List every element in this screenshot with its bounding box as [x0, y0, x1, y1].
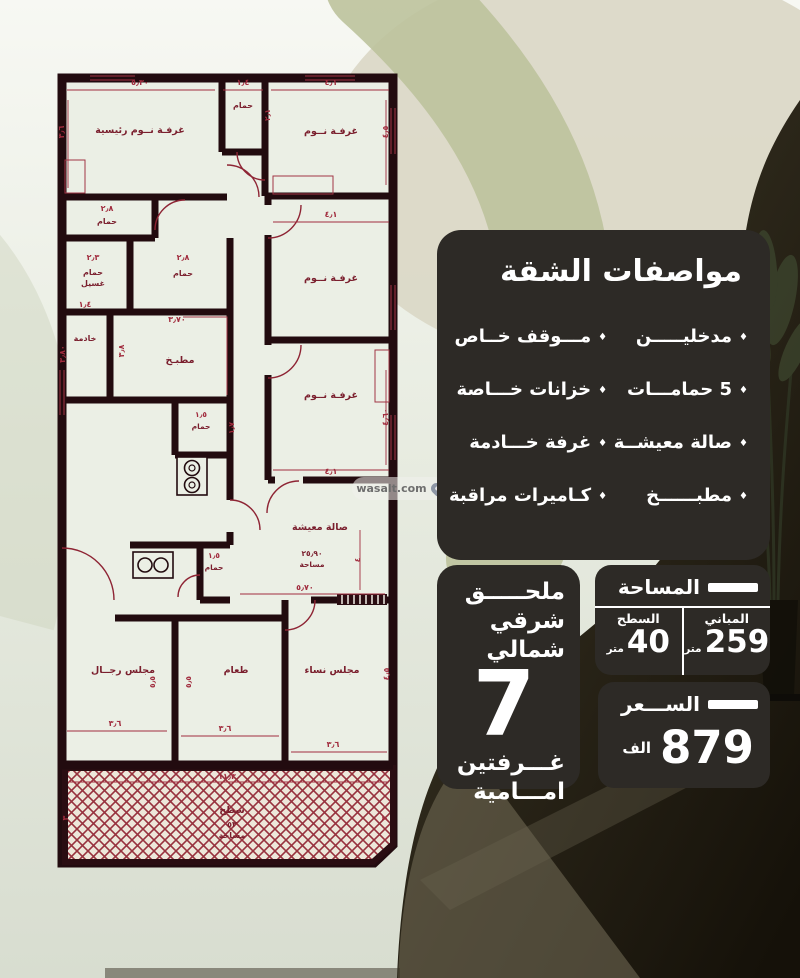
room-label: حمام: [83, 268, 103, 277]
spec-item-label: كـاميرات مراقبة: [449, 485, 591, 506]
room-label: حمام: [192, 422, 211, 431]
room-label: صالة معيشة: [292, 522, 348, 533]
price-value-row: 879 الف: [598, 723, 770, 770]
room-label: حمام: [173, 269, 193, 278]
room-label: غرفـة نــوم: [304, 126, 358, 137]
room-label: سطح: [219, 805, 244, 816]
header-bar-icon: [708, 583, 758, 592]
room-label: غرفـة نــوم: [304, 390, 358, 401]
dimension-label: ١١٫٣: [218, 772, 236, 781]
annex-line-4: امـــامية: [449, 778, 565, 807]
spec-item-label: 5 حمامـــات: [627, 379, 732, 400]
dimension-label: ٤: [353, 558, 362, 563]
roof-area-value: 40: [627, 627, 670, 658]
diamond-bullet-icon: ♦: [598, 492, 607, 502]
room-label: ٥٣: [227, 820, 237, 829]
diamond-bullet-icon: ♦: [598, 386, 607, 396]
dimension-label: ٣٫٦: [109, 719, 122, 728]
spec-item-kitchen: ♦مطبــــــخ: [611, 485, 748, 506]
dimension-label: ٤٫٥: [381, 126, 390, 139]
spec-item-label: غرفة خـــادمة: [469, 432, 591, 453]
spec-item-bathrooms: ♦5 حمامـــات: [611, 379, 748, 400]
diamond-bullet-icon: ♦: [598, 439, 607, 449]
olive-curve-left: [0, 250, 35, 620]
room-label: طعام: [224, 665, 249, 676]
room-label: ٢٥٫٩٠: [301, 549, 322, 558]
spec-item-tanks: ♦خزانات خـــاصة: [449, 379, 607, 400]
price-value: 879: [660, 725, 754, 770]
dimension-label: ٢٫١: [263, 109, 272, 121]
area-title: المساحة: [618, 575, 700, 599]
annex-line-3: غـــرفتين: [449, 749, 565, 778]
room-label: حمام: [205, 563, 224, 572]
spec-item-label: صالة معيشــة: [614, 432, 732, 453]
dimension-label: ٣٫٦: [57, 126, 66, 139]
dimension-label: ٣٫٨٠: [58, 345, 67, 363]
photo-floor-edge: [105, 968, 400, 978]
room-label: خادمة: [74, 334, 97, 343]
area-panel: المساحة المباني 259 متر السطح 40 متر: [595, 565, 770, 675]
dimension-label: ٢٫٨: [177, 253, 190, 262]
spec-item-label: مطبــــــخ: [646, 485, 732, 506]
dimension-label: ٣٫٨: [117, 345, 126, 358]
specs-title: مواصفات الشقة: [437, 230, 770, 289]
annex-line-1: ملحـــــق: [449, 578, 565, 607]
dimension-label: ٤٫١: [325, 467, 338, 476]
spec-item-parking: ♦مـــوقف خــاص: [449, 326, 607, 347]
diamond-bullet-icon: ♦: [739, 333, 748, 343]
spec-item-living-hall: ♦صالة معيشــة: [611, 432, 748, 453]
annex-number: 7: [449, 664, 559, 747]
annex-panel: ملحـــــق شرقي شمالي 7 غـــرفتين امـــام…: [437, 565, 580, 789]
price-title: الســـعر: [621, 692, 700, 716]
price-unit: الف: [622, 739, 651, 757]
room-label: مجلس رجــال: [91, 665, 155, 676]
diamond-bullet-icon: ♦: [739, 386, 748, 396]
dimension-label: ٥٫٥: [184, 676, 193, 688]
room-label: مساحة: [219, 831, 246, 840]
dimension-label: ٢٫٨: [101, 204, 114, 213]
stove-fixture: [133, 552, 173, 578]
roof-area-unit: متر: [607, 643, 624, 655]
buildings-area-value: 259: [705, 627, 770, 658]
dimension-label: ١٫٧: [227, 422, 236, 434]
room-label: غسيل: [81, 279, 105, 288]
price-header: الســـعر: [598, 682, 770, 723]
dimension-label: ٥٫٧٠: [296, 583, 314, 592]
dimension-label: ٣٫٧٠: [168, 315, 186, 324]
specs-list: ♦مدخليـــــن ♦مـــوقف خــاص ♦5 حمامـــات…: [437, 326, 770, 506]
spec-item-cameras: ♦كـاميرات مراقبة: [449, 485, 607, 506]
area-header: المساحة: [595, 565, 770, 606]
diamond-bullet-icon: ♦: [739, 492, 748, 502]
room-label: غرفـة نــوم: [304, 273, 358, 284]
dimension-label: ٣٫٦: [327, 740, 340, 749]
diamond-bullet-icon: ♦: [598, 333, 607, 343]
dimension-label: ٣: [61, 815, 70, 820]
dimension-label: ١٫٤: [237, 78, 250, 87]
dimension-label: ٥٫٥: [148, 676, 157, 688]
price-panel: الســـعر 879 الف: [598, 682, 770, 788]
floor-plan: غرفـة نــوم رئيسيةحمامغرفـة نــومحمامحما…: [55, 70, 405, 870]
room-label: مطبـخ: [165, 355, 194, 366]
dimension-label: ٤٫٦٠: [381, 408, 390, 426]
buildings-area-unit: متر: [684, 643, 701, 655]
spec-item-maid-room: ♦غرفة خـــادمة: [449, 432, 607, 453]
room-label: مساحة: [299, 560, 324, 569]
spec-item-label: خزانات خـــاصة: [456, 379, 591, 400]
wasalt-watermark: wasalt.com: [352, 477, 446, 500]
room-label: حمام: [233, 101, 253, 110]
area-cell-buildings: المباني 259 متر: [684, 608, 771, 675]
dimension-label: ١٫٥: [195, 410, 207, 419]
dimension-label: ١٫٥: [208, 551, 220, 560]
dimension-label: ٢٫٣: [87, 253, 100, 262]
specs-panel: مواصفات الشقة ♦مدخليـــــن ♦مـــوقف خــا…: [437, 230, 770, 560]
header-bar-icon: [708, 700, 758, 709]
area-cell-roof: السطح 40 متر: [595, 608, 684, 675]
diamond-bullet-icon: ♦: [739, 439, 748, 449]
room-label: مجلس نساء: [304, 665, 359, 676]
dimension-label: ١٫٤: [79, 300, 92, 309]
dimension-label: ٤٫١: [325, 210, 338, 219]
dimension-label: ٥٫٣٠: [131, 78, 149, 87]
spec-item-entrances: ♦مدخليـــــن: [611, 326, 748, 347]
dimension-label: ٣: [380, 815, 389, 820]
room-label: حمام: [97, 217, 117, 226]
dimension-label: ٤٫١: [325, 78, 338, 87]
washer-fixture: [177, 457, 207, 495]
watermark-text: wasalt.com: [356, 482, 426, 495]
dimension-label: ٣٫٦: [219, 724, 232, 733]
area-table: المباني 259 متر السطح 40 متر: [595, 606, 770, 675]
spec-item-label: مدخليـــــن: [636, 326, 732, 347]
dimension-label: ٤٫٥: [382, 668, 391, 681]
spec-item-label: مـــوقف خــاص: [455, 326, 592, 347]
window-hatch-box: [337, 594, 387, 605]
room-label: غرفـة نــوم رئيسية: [95, 125, 184, 136]
listing-graphic: غرفـة نــوم رئيسيةحمامغرفـة نــومحمامحما…: [0, 0, 800, 978]
